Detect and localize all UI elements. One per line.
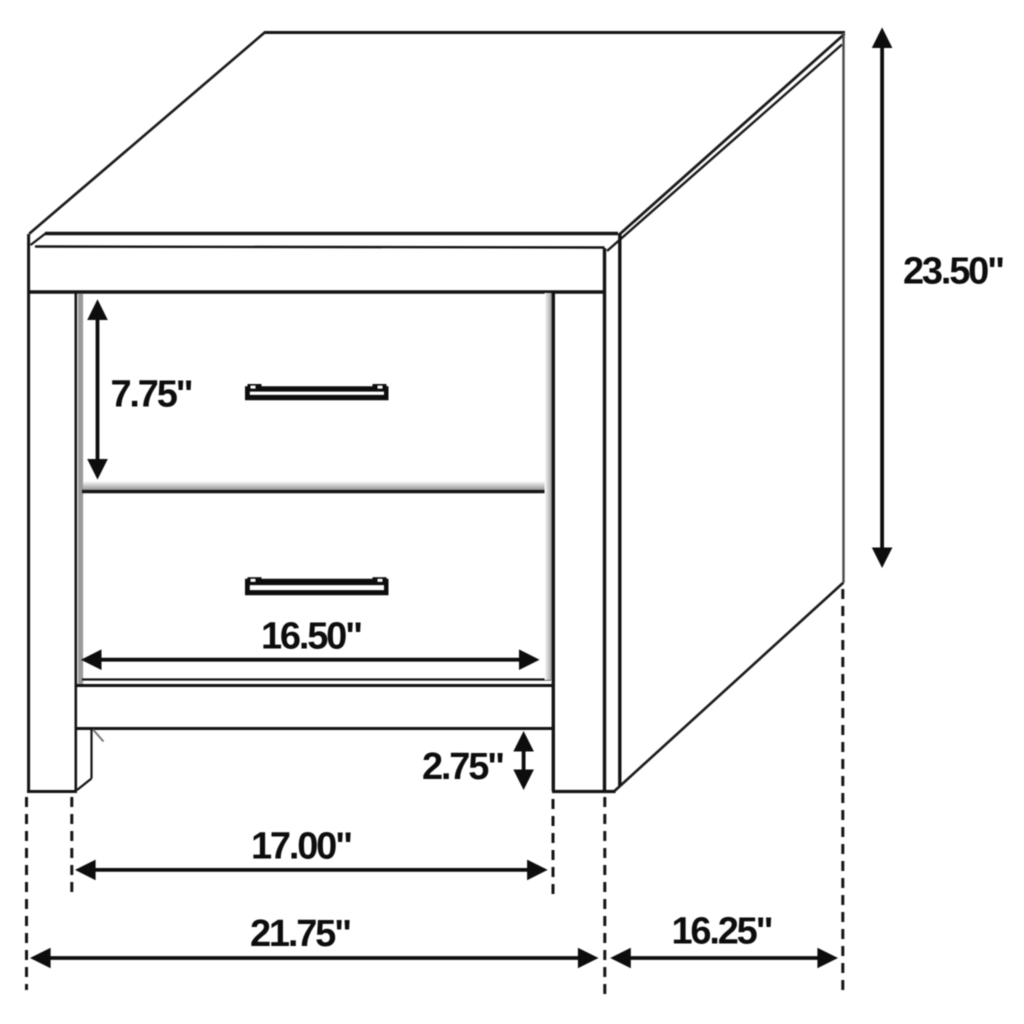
svg-text:2.75": 2.75" <box>422 746 503 788</box>
svg-text:7.75": 7.75" <box>111 373 192 415</box>
svg-text:23.50": 23.50" <box>903 251 1003 293</box>
svg-text:21.75": 21.75" <box>250 913 350 955</box>
svg-text:16.25": 16.25" <box>672 911 772 953</box>
svg-text:17.00": 17.00" <box>251 826 351 868</box>
svg-text:16.50": 16.50" <box>261 616 361 658</box>
